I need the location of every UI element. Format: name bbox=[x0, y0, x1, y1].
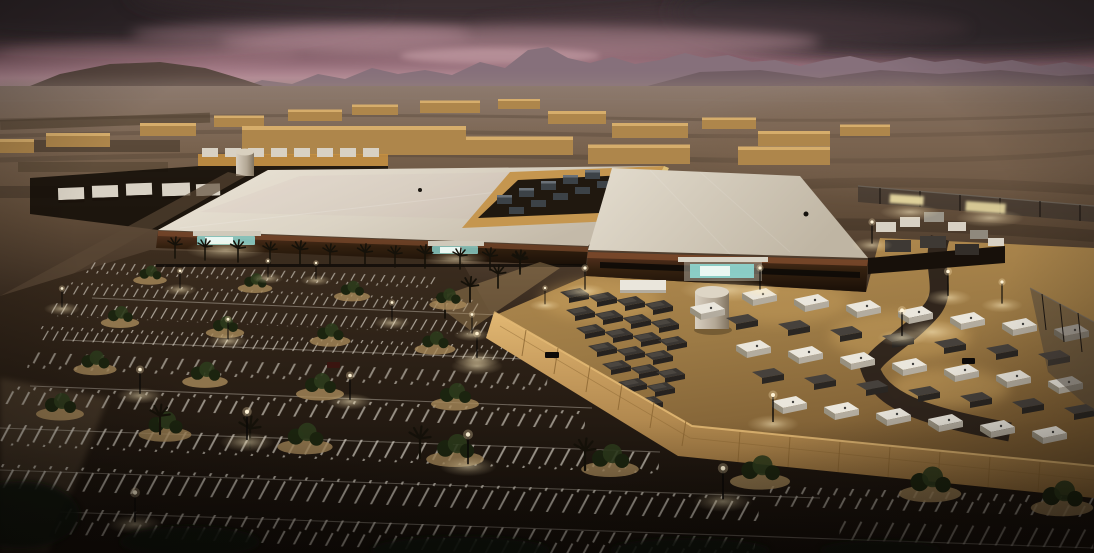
vignette bbox=[0, 0, 1094, 553]
aerial-dusk-rendering bbox=[0, 0, 1094, 553]
